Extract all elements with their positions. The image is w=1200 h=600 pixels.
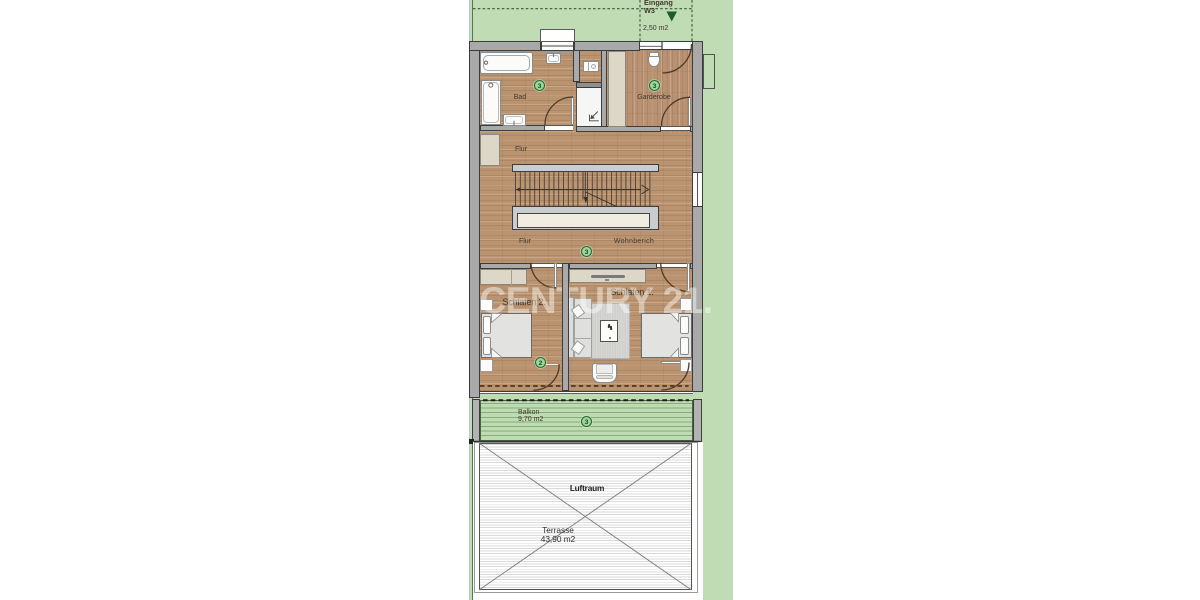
svg-text:2: 2: [539, 360, 543, 367]
svg-text:3: 3: [653, 83, 657, 90]
svg-text:3: 3: [584, 249, 588, 256]
svg-text:3: 3: [538, 83, 542, 90]
svg-text:3: 3: [585, 419, 589, 426]
